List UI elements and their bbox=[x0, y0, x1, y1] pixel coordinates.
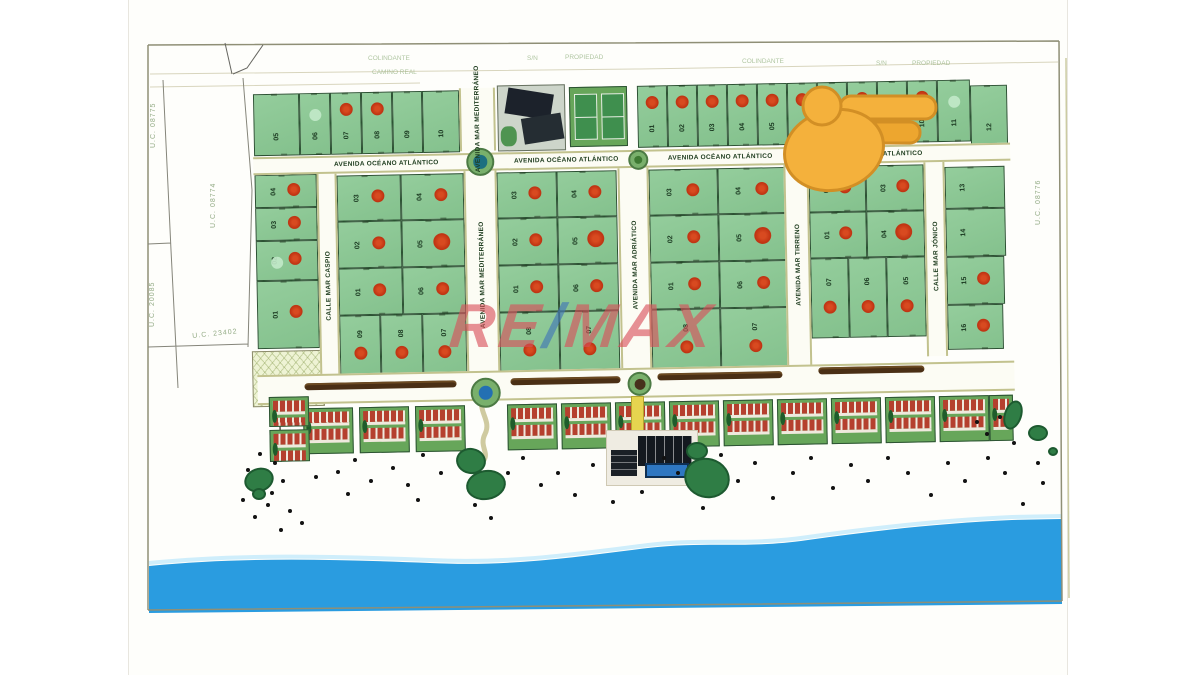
boundary-label: PROPIEDAD bbox=[565, 54, 603, 61]
uc-parcel-label: U.C. 08776 bbox=[1035, 180, 1042, 225]
watermark-re: RE bbox=[446, 292, 547, 361]
boundary-label: COLINDANTE bbox=[368, 55, 410, 62]
uc-parcel-label: U.C. 20085 bbox=[149, 282, 156, 327]
boundary-label: CAMINO REAL bbox=[372, 69, 417, 76]
remax-watermark: RE/MAX bbox=[447, 296, 719, 358]
boundary-label: S/N bbox=[527, 55, 538, 62]
boundary-label: PROPIEDAD bbox=[912, 60, 950, 67]
watermark-max: MAX bbox=[562, 292, 719, 361]
boundary-label: COLINDANTE bbox=[742, 58, 784, 65]
uc-parcel-label: U.C. 23402 bbox=[192, 328, 238, 340]
uc-parcel-label: U.C. 08775 bbox=[150, 103, 157, 148]
pointing-hand-icon bbox=[782, 80, 952, 200]
scanned-lot-map-page: 0506070809100102030405060708091011120403… bbox=[0, 0, 1200, 675]
uc-parcel-label: U.C. 08774 bbox=[210, 183, 217, 228]
boundary-label: S/N bbox=[876, 60, 887, 67]
